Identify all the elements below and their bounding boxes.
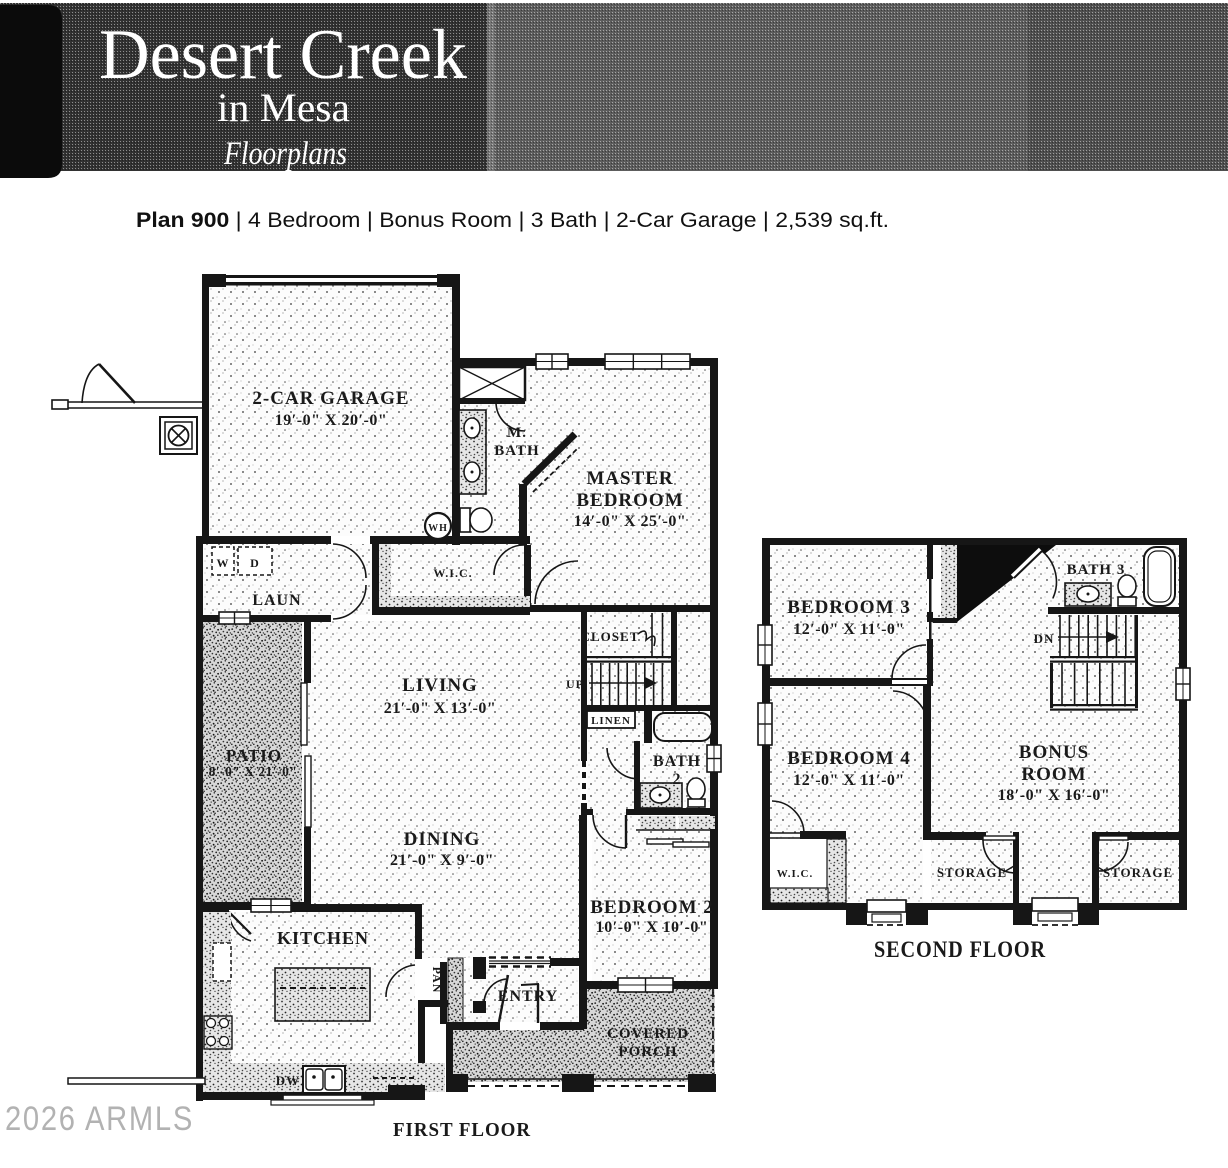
svg-text:STORAGE: STORAGE: [937, 865, 1007, 880]
svg-text:LAUN: LAUN: [252, 592, 301, 609]
svg-text:KITCHEN: KITCHEN: [277, 928, 369, 948]
svg-text:21′-0" X 13′-0": 21′-0" X 13′-0": [384, 700, 496, 717]
svg-text:ROOM: ROOM: [1021, 764, 1086, 785]
svg-text:14′-0" X 25′-0": 14′-0" X 25′-0": [574, 513, 686, 530]
svg-text:2-CAR GARAGE: 2-CAR GARAGE: [252, 388, 409, 409]
svg-text:10′-0" X 10′-0": 10′-0" X 10′-0": [596, 919, 708, 936]
svg-text:2: 2: [673, 771, 682, 788]
svg-text:BEDROOM 2: BEDROOM 2: [590, 897, 714, 918]
svg-text:12′-0" X 11′-0": 12′-0" X 11′-0": [793, 772, 905, 789]
svg-text:2026 ARMLS: 2026 ARMLS: [5, 1100, 194, 1138]
svg-text:LINEN: LINEN: [591, 715, 631, 727]
svg-text:BATH 3: BATH 3: [1067, 562, 1126, 578]
svg-text:12′-0" X 11′-0": 12′-0" X 11′-0": [793, 621, 905, 638]
svg-text:DINING: DINING: [404, 829, 481, 850]
svg-text:18′-0" X 16′-0": 18′-0" X 16′-0": [998, 787, 1110, 804]
svg-text:W.I.C.: W.I.C.: [433, 566, 472, 580]
svg-text:BATH: BATH: [494, 443, 539, 459]
svg-text:PORCH: PORCH: [618, 1044, 677, 1060]
svg-text:BEDROOM 4: BEDROOM 4: [787, 748, 911, 769]
svg-text:STORAGE: STORAGE: [1103, 865, 1173, 880]
svg-text:COVERED: COVERED: [607, 1026, 689, 1042]
svg-text:UP: UP: [566, 677, 584, 691]
svg-text:M.: M.: [507, 425, 527, 441]
svg-text:19′-0" X 20′-0": 19′-0" X 20′-0": [275, 412, 387, 429]
svg-text:BONUS: BONUS: [1019, 742, 1089, 763]
svg-text:8′-0" X 21′-0": 8′-0" X 21′-0": [209, 764, 298, 779]
svg-text:W: W: [217, 556, 230, 570]
svg-text:in Mesa: in Mesa: [217, 85, 350, 130]
svg-text:W.I.C.: W.I.C.: [777, 868, 813, 880]
svg-text:BEDROOM 3: BEDROOM 3: [787, 597, 911, 618]
svg-text:MASTER: MASTER: [586, 468, 673, 489]
svg-text:PATIO: PATIO: [226, 746, 282, 765]
svg-text:21′-0" X 9′-0": 21′-0" X 9′-0": [390, 852, 494, 869]
svg-text:BEDROOM: BEDROOM: [576, 490, 683, 511]
svg-text:D: D: [250, 556, 260, 570]
svg-text:FIRST FLOOR: FIRST FLOOR: [393, 1119, 531, 1141]
svg-text:WH: WH: [428, 523, 448, 534]
svg-text:Plan 900 | 4 Bedroom | Bon: Plan 900 | 4 Bedroom | Bonus Room | 3 Ba…: [136, 209, 889, 232]
svg-text:PAN: PAN: [430, 967, 444, 994]
svg-text:Desert Creek: Desert Creek: [99, 16, 467, 94]
svg-text:CLOSET: CLOSET: [581, 629, 640, 644]
svg-text:DW: DW: [276, 1073, 300, 1088]
svg-text:DN: DN: [1034, 631, 1055, 646]
svg-text:LIVING: LIVING: [402, 675, 478, 696]
svg-text:BATH: BATH: [653, 753, 701, 770]
svg-text:SECOND FLOOR: SECOND FLOOR: [874, 937, 1046, 962]
svg-text:ENTRY: ENTRY: [498, 988, 558, 1005]
svg-text:Floorplans: Floorplans: [223, 136, 347, 172]
